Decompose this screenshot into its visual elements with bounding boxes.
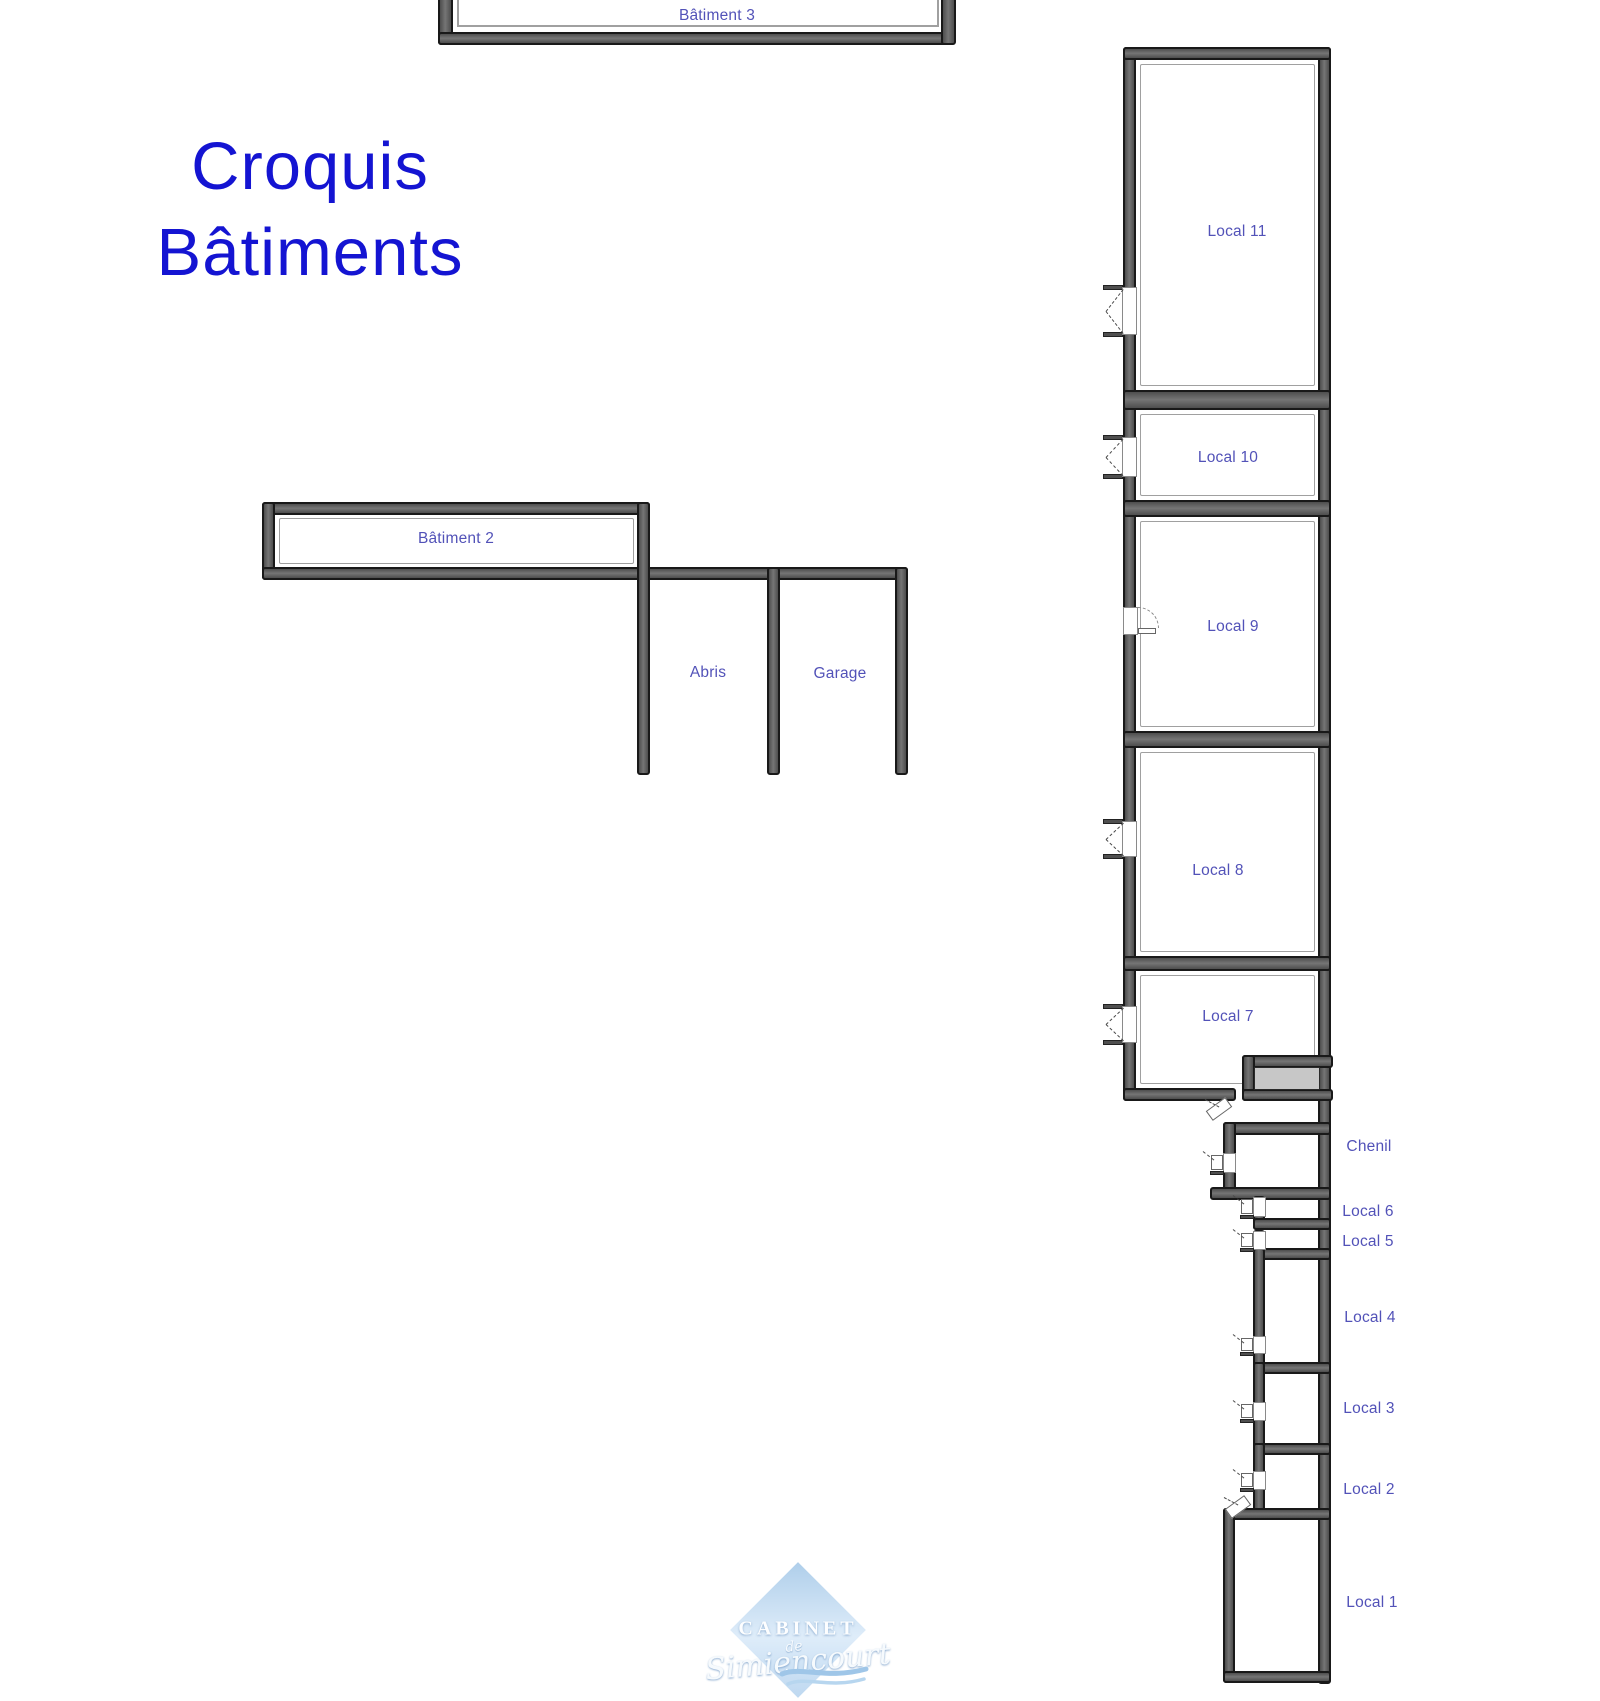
door-opening bbox=[1253, 1231, 1266, 1250]
local7-door bbox=[1103, 1006, 1141, 1043]
batiment2-bottom-and-abris-top-wall bbox=[262, 567, 908, 580]
door-swing-dash bbox=[1106, 439, 1124, 458]
local1-left-wall bbox=[1223, 1508, 1235, 1683]
batiment3-inner-line-bottom bbox=[457, 25, 939, 27]
local6-door bbox=[1234, 1197, 1266, 1217]
chenil-top-wall bbox=[1223, 1122, 1331, 1135]
chenil-door bbox=[1204, 1153, 1236, 1173]
abris-label: Abris bbox=[690, 664, 726, 682]
garage-label: Garage bbox=[814, 665, 867, 683]
page-title-line2: Bâtiments bbox=[55, 214, 565, 291]
door-jamb bbox=[1240, 1215, 1254, 1219]
local2-door bbox=[1234, 1471, 1266, 1490]
door-swing-dash bbox=[1106, 311, 1124, 334]
local10-local9-divider bbox=[1123, 500, 1331, 517]
local11-local10-divider bbox=[1123, 390, 1331, 410]
local6-label: Local 6 bbox=[1342, 1203, 1393, 1221]
local1-label: Local 1 bbox=[1346, 1594, 1397, 1612]
column-left-wall bbox=[1123, 47, 1136, 1101]
local5-label: Local 5 bbox=[1342, 1233, 1393, 1251]
local8-inner-line bbox=[1140, 752, 1315, 952]
door-leaf bbox=[1241, 1473, 1253, 1487]
batiment3-label: Bâtiment 3 bbox=[679, 7, 755, 25]
page-title-line1: Croquis bbox=[55, 128, 565, 205]
local5-door bbox=[1234, 1231, 1266, 1250]
annex-filled-area bbox=[1254, 1067, 1320, 1090]
door-opening bbox=[1253, 1197, 1266, 1217]
batiment2-top-wall bbox=[262, 502, 650, 515]
batiment3-right-wall bbox=[941, 0, 956, 45]
local11-door bbox=[1103, 287, 1141, 335]
local9-door bbox=[1121, 607, 1167, 637]
column-right-wall bbox=[1318, 47, 1331, 1684]
watermark-cabinet-text: CABINET bbox=[738, 1618, 857, 1641]
door-opening bbox=[1253, 1336, 1266, 1354]
door-jamb bbox=[1210, 1171, 1224, 1175]
door-leaf bbox=[1241, 1199, 1253, 1214]
batiment3-inner-line-left bbox=[457, 0, 459, 26]
door-leaf bbox=[1211, 1155, 1223, 1170]
door-opening bbox=[1123, 607, 1138, 635]
floor-plan-canvas: Croquis Bâtiments Bâtiment 3 Bâtiment 2 … bbox=[0, 0, 1600, 1701]
door-leaf bbox=[1122, 287, 1137, 335]
door-jamb bbox=[1103, 474, 1123, 479]
local9-local8-divider bbox=[1123, 731, 1331, 748]
door-jamb bbox=[1103, 285, 1123, 290]
local4-door bbox=[1234, 1336, 1266, 1354]
door-leaf bbox=[1122, 821, 1137, 857]
chenil-label: Chenil bbox=[1346, 1138, 1391, 1156]
local4-left-wall bbox=[1253, 1248, 1265, 1374]
local8-label: Local 8 bbox=[1192, 862, 1243, 880]
door-swing-dash bbox=[1106, 289, 1124, 312]
local11-top-wall bbox=[1123, 47, 1331, 60]
annex-bottom-wall bbox=[1242, 1089, 1333, 1101]
local10-door bbox=[1103, 437, 1141, 477]
batiment3-bottom-wall bbox=[438, 32, 955, 45]
door-leaf bbox=[1241, 1338, 1253, 1351]
door-opening bbox=[1223, 1153, 1236, 1173]
door-jamb bbox=[1240, 1488, 1254, 1492]
local4-label: Local 4 bbox=[1344, 1309, 1395, 1327]
batiment3-inner-line-right bbox=[937, 0, 939, 26]
garage-right-wall bbox=[895, 567, 908, 775]
local3-label: Local 3 bbox=[1343, 1400, 1394, 1418]
door-opening bbox=[1253, 1402, 1266, 1421]
local2-label: Local 2 bbox=[1343, 1481, 1394, 1499]
chenil-bottom-wall bbox=[1210, 1187, 1331, 1200]
local6-bottom-wall bbox=[1253, 1218, 1331, 1230]
door-jamb bbox=[1240, 1352, 1254, 1356]
door-jamb bbox=[1103, 819, 1123, 824]
door-jamb bbox=[1103, 1040, 1123, 1045]
local7-label: Local 7 bbox=[1202, 1008, 1253, 1026]
door-jamb bbox=[1240, 1419, 1254, 1423]
door-leaf bbox=[1122, 437, 1137, 477]
batiment2-label: Bâtiment 2 bbox=[418, 530, 494, 548]
batiment2-right-abris-left-wall bbox=[637, 502, 650, 775]
local11-label: Local 11 bbox=[1207, 223, 1266, 241]
door-jamb bbox=[1103, 854, 1123, 859]
door-leaf bbox=[1241, 1233, 1253, 1247]
door-jamb bbox=[1103, 435, 1123, 440]
local3-door bbox=[1234, 1402, 1266, 1421]
local1-bottom-wall bbox=[1223, 1671, 1331, 1683]
local8-door bbox=[1103, 821, 1141, 857]
abris-garage-divider-wall bbox=[767, 567, 780, 775]
local8-local7-divider bbox=[1123, 956, 1331, 971]
door-leaf bbox=[1122, 1006, 1137, 1043]
door-opening bbox=[1253, 1471, 1266, 1490]
door-jamb bbox=[1240, 1248, 1254, 1252]
chenil-entry-door bbox=[1205, 1097, 1235, 1123]
door-leaf bbox=[1138, 628, 1156, 634]
watermark-waves-icon bbox=[778, 1664, 870, 1692]
door-jamb bbox=[1103, 1004, 1123, 1009]
local9-label: Local 9 bbox=[1207, 618, 1258, 636]
door-jamb bbox=[1103, 332, 1123, 337]
local10-label: Local 10 bbox=[1198, 449, 1258, 467]
door-leaf bbox=[1241, 1404, 1253, 1418]
local1-door bbox=[1224, 1494, 1254, 1520]
